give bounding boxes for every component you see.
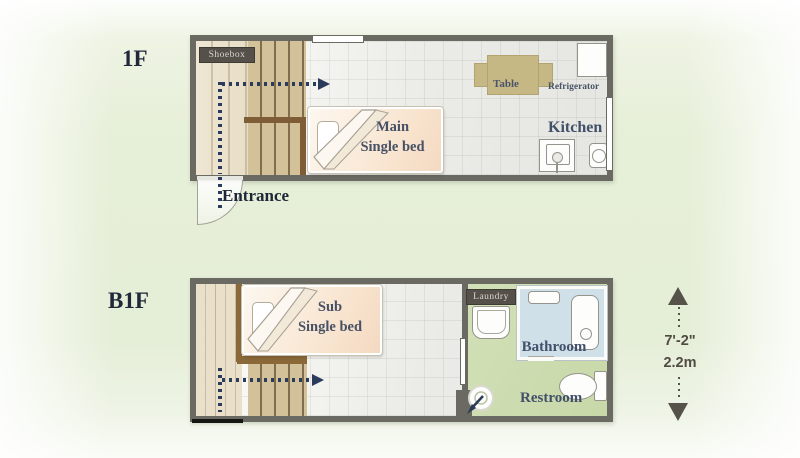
kitchen-sink-icon [539,139,575,172]
floor-b1f-title: B1F [108,288,149,314]
floor-1f-title: 1F [122,46,148,72]
refrigerator-icon [577,43,607,77]
main-bed-icon: Main Single bed [308,107,443,173]
route-dots [218,82,222,174]
restroom-label: Restroom [520,390,582,407]
burner [592,149,606,163]
stair-edge [244,117,306,123]
dimension-arrow-up-icon [668,287,688,305]
route-dots [222,82,318,86]
sink-drain [556,163,558,173]
sliding-door [460,338,466,385]
bathroom-label: Bathroom [520,339,588,356]
scale-bar [192,419,243,423]
kitchen-label: Kitchen [548,119,602,137]
stair-edge [300,117,306,175]
stairs-down-icon [248,41,306,175]
dimension-arrow-down-icon [668,403,688,421]
refrigerator-label: Refrigerator [548,82,599,92]
dimension-line [678,377,680,401]
window [606,97,613,171]
dimension-labels: 7'-2" 2.2m [650,331,710,375]
entrance-label: Entrance [222,186,289,206]
washing-machine-icon [472,306,510,339]
stair-edge [237,356,307,364]
dimension-feet: 7'-2" [650,331,710,353]
bathroom-sink-icon [528,291,560,304]
main-bed-label: Main Single bed [346,117,439,158]
dimension-line [678,307,680,331]
floor-1f-plan: Shoebox Main Single bed Table Refrigerat… [190,35,613,181]
dimension-meters: 2.2m [650,353,710,375]
floor-b1f-plan: Sub Single bed Laundry Bathroom [190,278,613,422]
sub-bed-label: Sub Single bed [282,297,378,338]
sink-faucet [552,152,563,163]
floor-plan-diagram: 1F Shoebox Main Single bed Table [0,0,800,458]
shoebox-label: Shoebox [199,47,255,63]
door-swing-icon [466,384,496,416]
bathroom-door-opening [528,356,554,361]
route-dots [218,368,222,412]
route-dots [222,378,312,382]
laundry-label: Laundry [466,289,516,305]
bathroom-room: Bathroom [517,286,607,360]
route-arrow-icon [312,374,324,386]
sub-bed-icon: Sub Single bed [242,285,382,355]
stairs-up-icon [248,364,307,416]
washer-drum [477,310,506,334]
table-label: Table [493,78,519,90]
window [312,35,364,43]
route-arrow-icon [318,78,330,90]
